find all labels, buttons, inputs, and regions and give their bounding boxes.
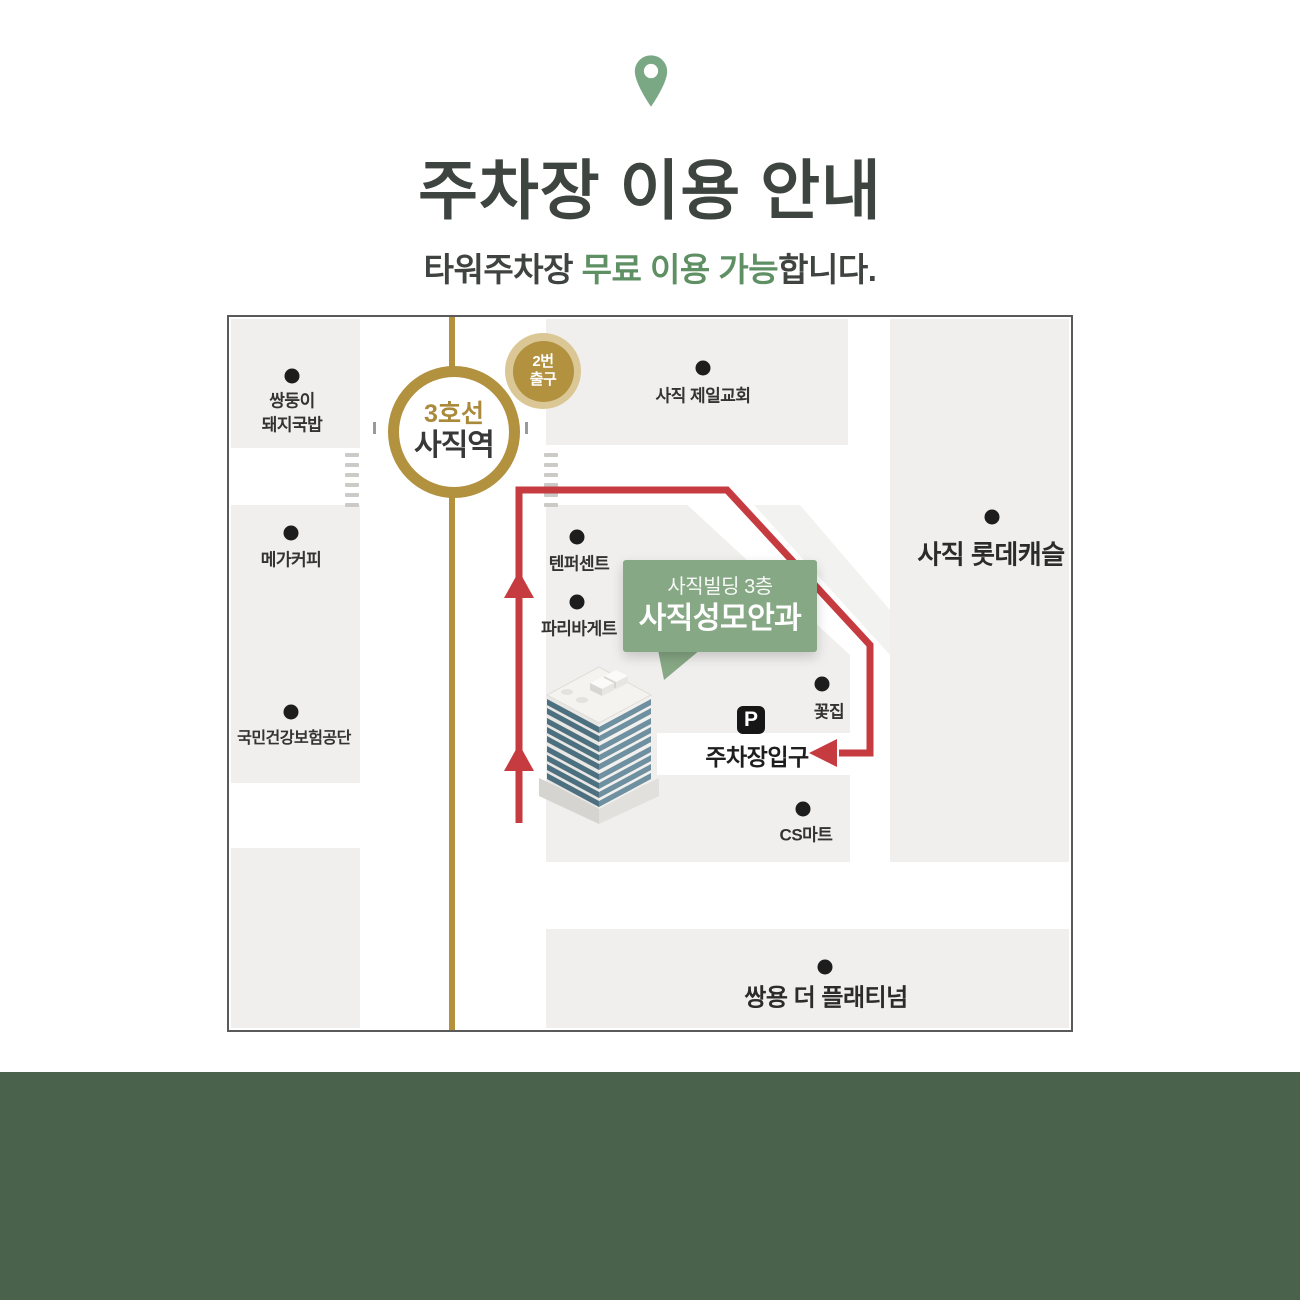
poi-dot-lotte-castle: [985, 510, 1000, 525]
poi-dot-twin-soup: [285, 369, 300, 384]
page-title: 주차장 이용 안내: [0, 138, 1300, 232]
subtitle-prefix: 타워주차장: [424, 251, 582, 288]
parking-guide-page: 주차장 이용 안내 타워주차장 무료 이용 가능합니다.: [0, 0, 1300, 1300]
poi-label-twin-soup-line2: 돼지국밥: [262, 411, 323, 436]
footer-band: 사직빌딩주차장: [0, 1072, 1300, 1300]
route-arrow: [227, 315, 1073, 1031]
parking-entrance-label: 주차장입구: [705, 738, 808, 772]
poi-label-ssangyong: 쌍용 더 플래티넘: [744, 978, 907, 1013]
station-name: 사직역: [414, 429, 494, 464]
poi-label-nhis: 국민건강보험공단: [237, 724, 351, 748]
subtitle-suffix: 합니다.: [778, 251, 876, 288]
poi-label-twin-soup-line1: 쌍둥이: [269, 387, 314, 412]
poi-dot-mega-coffee: [284, 526, 299, 541]
route-arrowhead-up-1: [504, 571, 534, 598]
poi-label-flower-shop: 꽃집: [814, 698, 844, 723]
poi-dot-church: [696, 361, 711, 376]
exit-badge-line2: 출구: [530, 371, 557, 389]
poi-dot-paris-baguette: [570, 595, 585, 610]
poi-label-church: 사직 제일교회: [655, 382, 750, 407]
subtitle-highlight: 무료 이용 가능: [582, 251, 779, 288]
station-circle: 3호선 사직역: [388, 366, 520, 498]
poi-dot-ten-percent: [570, 530, 585, 545]
clinic-callout: 사직빌딩 3층 사직성모안과: [623, 560, 817, 652]
route-arrowhead-up-2: [504, 744, 534, 771]
location-pin-icon: [632, 52, 670, 110]
poi-label-ten-percent: 텐퍼센트: [549, 550, 610, 575]
poi-label-mega-coffee: 메가커피: [261, 546, 322, 571]
route-arrowhead-left: [809, 739, 837, 767]
exit-badge-line1: 2번: [532, 353, 553, 371]
poi-label-lotte-castle: 사직 롯데캐슬: [917, 535, 1064, 572]
poi-dot-flower-shop: [815, 677, 830, 692]
poi-dot-nhis: [284, 705, 299, 720]
parking-p-letter: P: [744, 708, 758, 732]
callout-floor-label: 사직빌딩 3층: [667, 575, 772, 600]
map-panel: 3호선 사직역 2번 출구 쌍둥이 돼지국밥 사직 제일교회 메가커피 국민건강…: [227, 315, 1073, 1032]
callout-tail: [652, 650, 702, 682]
exit-2-badge: 2번 출구: [505, 333, 581, 409]
page-subtitle: 타워주차장 무료 이용 가능합니다.: [0, 243, 1300, 291]
poi-label-cs-mart: CS마트: [780, 821, 833, 846]
poi-dot-ssangyong: [818, 960, 833, 975]
poi-label-paris-baguette: 파리바게트: [541, 615, 617, 640]
poi-dot-cs-mart: [796, 802, 811, 817]
station-line-label: 3호선: [424, 400, 484, 429]
parking-p-icon: P: [737, 706, 765, 734]
callout-clinic-name: 사직성모안과: [639, 600, 802, 638]
